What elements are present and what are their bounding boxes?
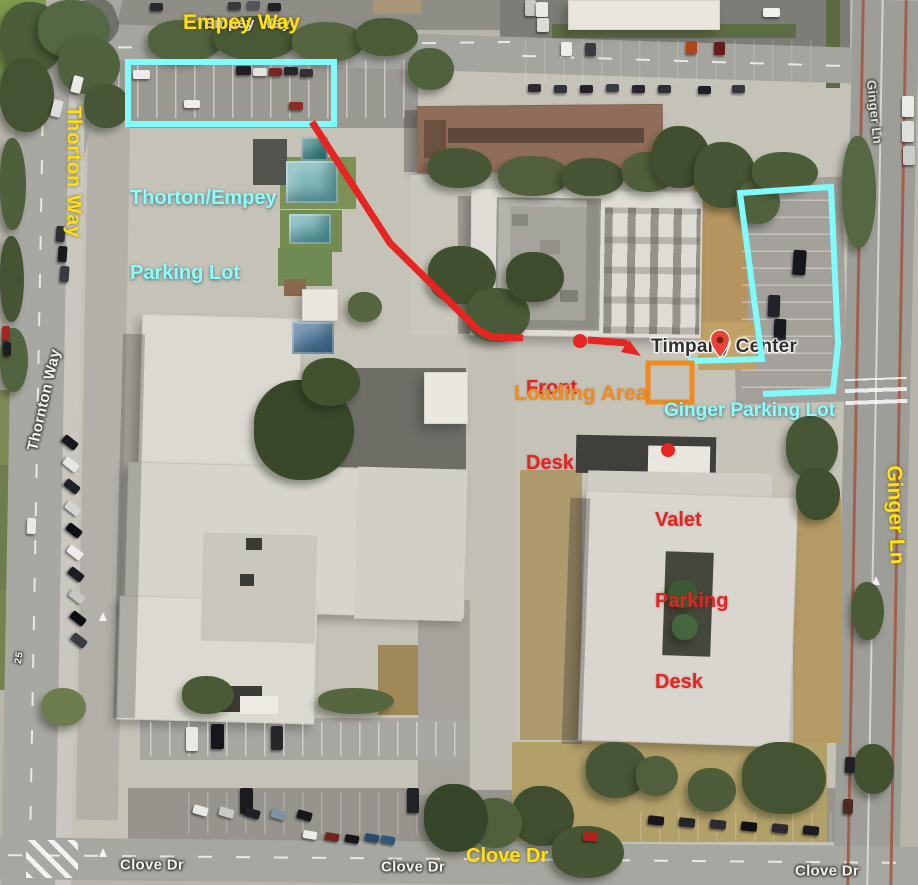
valet-parking-desk-label: Valet Parking Desk (655, 453, 728, 750)
speed-limit-pavement-label: 25 (13, 651, 27, 665)
front-desk-label: Front Desk (526, 326, 577, 526)
thorton-empey-lot-label-line2: Parking Lot (130, 261, 277, 286)
thorton-empey-lot-label: Thorton/Empey Parking Lot (130, 136, 277, 336)
ginger-parking-lot-label: Ginger Parking Lot (664, 399, 835, 423)
thorton-empey-lot-label-line1: Thorton/Empey (130, 186, 277, 211)
front-desk-label-line2: Desk (526, 451, 577, 476)
walking-route-line (312, 122, 523, 338)
satellite-map: Timpany Center Empey Way Empey Way Thort… (0, 0, 918, 885)
clove-dr-map-label-3: Clove Dr (795, 863, 859, 882)
loading-area-label: Loading Area (514, 381, 647, 407)
front-desk-arrow-line (588, 340, 627, 343)
ginger-ln-label: Ginger Ln (880, 465, 910, 565)
valet-label-line1: Valet (655, 507, 728, 534)
empey-way-label: Empey Way (183, 10, 300, 36)
timpany-center-pin-dot (717, 337, 724, 344)
thorton-empey-lot-outline (128, 62, 334, 124)
ginger-lot-outline (688, 187, 838, 394)
valet-label-line2: Parking (655, 588, 728, 615)
clove-dr-map-label-1: Clove Dr (120, 857, 184, 876)
valet-label-line3: Desk (655, 669, 728, 696)
clove-dr-label: Clove Dr (466, 844, 548, 869)
clove-dr-map-label-2: Clove Dr (381, 859, 445, 878)
timpany-center-pin-icon (711, 330, 730, 358)
annotation-overlay (0, 0, 918, 885)
loading-area-outline (648, 363, 692, 402)
thorton-way-label: Thorton Way (61, 106, 86, 238)
